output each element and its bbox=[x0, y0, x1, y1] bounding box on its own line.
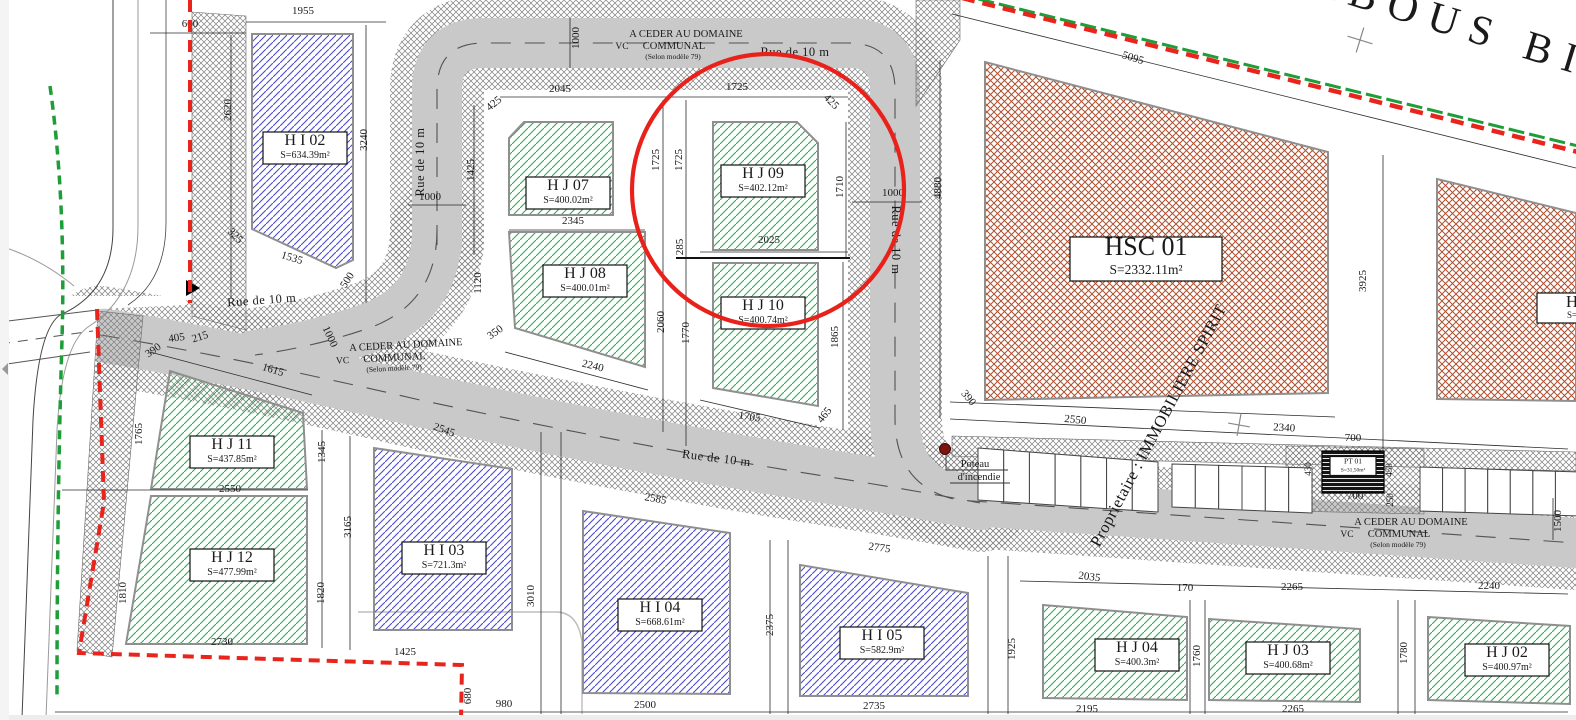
parking-stall bbox=[1488, 469, 1511, 514]
dimension-label: 1425 bbox=[394, 646, 417, 658]
parcel-hi02: H I 02S=634.39m² bbox=[252, 34, 353, 268]
dimension-label: 1765 bbox=[133, 423, 145, 446]
parcel-area-label: S=400.02m² bbox=[543, 195, 592, 206]
viewer-left-gutter bbox=[0, 0, 9, 720]
dimension-label: 2620 bbox=[222, 99, 234, 122]
dimension-label: 1955 bbox=[292, 5, 315, 17]
dimension-label: 1725 bbox=[726, 81, 749, 93]
parcel-label: H bbox=[1566, 292, 1576, 311]
parcel-area-label: S=402.12m² bbox=[738, 183, 787, 194]
parcel-area-hi03 bbox=[374, 448, 512, 630]
dimension-label: 3165 bbox=[342, 516, 354, 539]
parcel-hi04: H I 04S=668.61m² bbox=[583, 511, 730, 694]
parking-stall bbox=[1195, 465, 1218, 509]
dimension-label: 2025 bbox=[758, 234, 781, 246]
fire-hydrant-label: Poteau bbox=[961, 459, 990, 470]
dimension-label: 3010 bbox=[525, 585, 537, 608]
parking-stall bbox=[1029, 452, 1055, 505]
parking-stall bbox=[1219, 465, 1242, 510]
parcel-area-label: S= bbox=[1567, 310, 1576, 320]
dimension-label: 2045 bbox=[549, 83, 572, 95]
parcel-area-hj10 bbox=[713, 263, 818, 406]
parcel-label: H J 11 bbox=[211, 436, 252, 453]
parking-stall bbox=[1443, 468, 1466, 513]
parking-stall bbox=[1081, 456, 1107, 509]
parking-stall bbox=[1172, 464, 1195, 508]
dimension-label: 2265 bbox=[1281, 581, 1304, 593]
parcel-hi03: H I 03S=721.3m² bbox=[374, 448, 512, 630]
dimension-label: 2375 bbox=[764, 614, 776, 637]
dimension-label: 2265 bbox=[1282, 703, 1305, 715]
parcel-hj10: H J 10S=400.74m² bbox=[713, 263, 818, 406]
dimension-label: 285 bbox=[674, 238, 686, 255]
parcel-area-label: S=400.68m² bbox=[1263, 660, 1312, 671]
parcel-label: H I 04 bbox=[640, 599, 681, 616]
dimension-label: 4880 bbox=[932, 177, 944, 200]
parcel-area-label: S=437.85m² bbox=[207, 454, 256, 465]
parcel-area-label: S=668.61m² bbox=[635, 617, 684, 628]
dimension-label: 430 bbox=[1303, 462, 1313, 476]
cession-note-line2: COMMUNAL bbox=[1368, 529, 1430, 540]
dimension-label: 1710 bbox=[834, 176, 846, 199]
dimension-label: 2550 bbox=[219, 483, 242, 495]
plan-drawing-layer: H I 02S=634.39m²H J 07S=400.02m²H J 08S=… bbox=[0, 0, 1576, 720]
dimension-label: 2345 bbox=[562, 215, 585, 227]
viewer-bottom-gutter bbox=[9, 715, 1576, 720]
dimension-label: 2195 bbox=[1076, 703, 1099, 715]
parcel-label: H J 04 bbox=[1116, 639, 1158, 656]
dimension-label: 1820 bbox=[315, 582, 327, 605]
dimension-label: 2240 bbox=[1478, 580, 1501, 592]
cadastral-plan-viewport: H I 02S=634.39m²H J 07S=400.02m²H J 08S=… bbox=[0, 0, 1576, 720]
cession-note-line1: A CEDER AU DOMAINE bbox=[1354, 517, 1467, 528]
dimension-label: 700 bbox=[1345, 432, 1362, 444]
dimension-label: 170 bbox=[1177, 582, 1194, 594]
dimension-label: 450 bbox=[1384, 463, 1394, 477]
parcel-hj07: H J 07S=400.02m² bbox=[509, 122, 613, 215]
parcel-label: H J 03 bbox=[1267, 642, 1309, 659]
parcel-label: H I 05 bbox=[862, 627, 903, 644]
cession-note-line3: (Selon modèle 79) bbox=[1370, 540, 1426, 549]
cadastral-plan: H I 02S=634.39m²H J 07S=400.02m²H J 08S=… bbox=[0, 0, 1576, 720]
dimension-label: 1865 bbox=[829, 326, 841, 349]
dimension-label: 980 bbox=[496, 698, 513, 710]
parking-stall bbox=[1004, 450, 1030, 503]
dimension-label: 680 bbox=[462, 687, 474, 704]
parcel-area-label: S=400.97m² bbox=[1482, 662, 1531, 673]
cession-note-vc: VC bbox=[336, 356, 350, 367]
dimension-label: 2735 bbox=[863, 700, 886, 712]
parcel-label: H I 03 bbox=[424, 542, 465, 559]
fire-hydrant-label: d'incendie bbox=[958, 472, 1001, 483]
dimension-label: 1725 bbox=[650, 149, 662, 172]
parcel-label: H J 12 bbox=[211, 549, 253, 566]
parcel-hj03: H J 03S=400.68m² bbox=[1209, 619, 1360, 702]
dimension-label: 2550 bbox=[1064, 413, 1088, 427]
dimension-label: 1000 bbox=[570, 27, 582, 50]
parcel-label: H J 08 bbox=[564, 265, 606, 282]
cession-note-line1: A CEDER AU DOMAINE bbox=[629, 29, 742, 40]
parcel-area-label: S=582.9m² bbox=[860, 645, 904, 656]
dimension-label: 1120 bbox=[472, 272, 484, 294]
parcel-hj12: H J 12S=477.99m² bbox=[126, 496, 307, 644]
dimension-label: 2340 bbox=[1273, 421, 1296, 434]
dimension-label: 1425 bbox=[465, 159, 477, 182]
dimension-label: 1925 bbox=[1006, 638, 1018, 661]
dimension-label: 250 bbox=[1385, 493, 1395, 507]
parcel-area-label: S=400.3m² bbox=[1115, 657, 1159, 668]
parking-stall bbox=[1465, 468, 1488, 513]
dimension-label: 1000 bbox=[882, 187, 905, 199]
parcel-area-label: S=400.01m² bbox=[560, 283, 609, 294]
parking-stall bbox=[1242, 466, 1265, 511]
dimension-label: 1760 bbox=[1191, 645, 1203, 668]
parcel-hj09: H J 09S=402.12m² bbox=[713, 122, 818, 250]
dimension-label: 3240 bbox=[358, 129, 370, 152]
parcel-area-label: S=2332.11m² bbox=[1109, 262, 1182, 277]
cession-note-line3: (Selon modèle 79) bbox=[645, 52, 701, 61]
dimension-label: 3925 bbox=[1357, 270, 1369, 293]
dimension-label: 1500 bbox=[1552, 510, 1564, 533]
parcel-label: PT 01 bbox=[1344, 457, 1362, 466]
parking-stall bbox=[1555, 471, 1576, 516]
parcel-hsc02: HS= bbox=[1437, 179, 1576, 401]
dimension-label: 700 bbox=[1347, 490, 1364, 502]
parking-stall bbox=[1055, 454, 1081, 507]
parcel-pt01: PT 01S=31,50m² bbox=[1322, 451, 1384, 493]
parking-stall bbox=[1265, 467, 1288, 512]
dimension-label: 1345 bbox=[316, 441, 328, 464]
parcel-hj04: H J 04S=400.3m² bbox=[1043, 605, 1187, 700]
parcel-label: H I 02 bbox=[285, 132, 326, 149]
street-label: Rue de 10 m bbox=[413, 127, 427, 196]
dimension-label: 2500 bbox=[634, 699, 657, 711]
parcel-area-label: S=477.99m² bbox=[207, 567, 256, 578]
parcel-label: HSC 01 bbox=[1104, 232, 1187, 261]
parcel-label: H J 07 bbox=[547, 177, 589, 194]
dimension-label: 405 bbox=[168, 331, 187, 345]
parking-stall bbox=[1420, 467, 1443, 512]
dimension-label: 2060 bbox=[655, 311, 667, 334]
cession-note-vc: VC bbox=[615, 42, 628, 52]
parcel-hj02: H J 02S=400.97m² bbox=[1428, 617, 1570, 704]
dimension-label: 1725 bbox=[673, 149, 685, 172]
dimension-label: 1770 bbox=[680, 322, 692, 345]
parcel-label: H J 10 bbox=[742, 297, 784, 314]
parcel-area-label: S=721.3m² bbox=[422, 560, 466, 571]
parcel-area-hsc02 bbox=[1437, 179, 1576, 401]
sidewalk-hatch bbox=[192, 12, 246, 330]
parcel-label: H J 09 bbox=[742, 165, 784, 182]
cession-note-line2: COMMUNAL bbox=[643, 41, 705, 52]
parcel-area-label: S=31,50m² bbox=[1341, 468, 1366, 474]
dimension-label: 1780 bbox=[1398, 642, 1410, 665]
dimension-label: 1810 bbox=[117, 582, 129, 605]
parking-stall bbox=[1510, 470, 1533, 515]
parking-stall bbox=[1533, 471, 1556, 516]
fire-hydrant-icon bbox=[940, 444, 951, 455]
cession-note-vc: VC bbox=[1340, 530, 1353, 540]
parcel-label: H J 02 bbox=[1486, 644, 1528, 661]
parcel-area-label: S=634.39m² bbox=[280, 150, 329, 161]
dimension-label: 2730 bbox=[211, 636, 234, 648]
